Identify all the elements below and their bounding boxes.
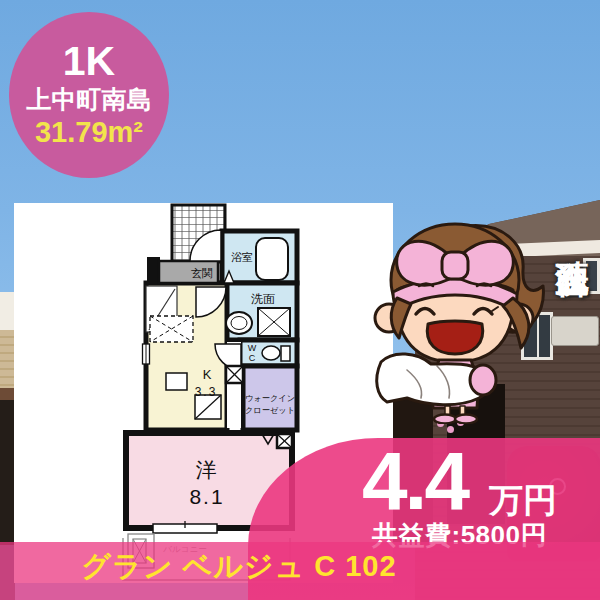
label-washroom: 洗面 [251,292,275,306]
toilet-tank [281,346,290,361]
mascot-bow-knot [442,252,468,279]
mascot-sleeve [470,365,496,395]
label-kitchen: K [203,367,212,382]
label-main-size: 8.1 [189,485,224,508]
mascot-shoe-right [455,415,477,424]
label-main-room: 洋 [196,458,217,481]
label-closet-1: ウォークイン [245,394,295,403]
rent-amount: 4.4 [362,440,467,522]
label-closet-2: クローゼット [245,406,295,415]
left-building-beam [0,388,15,400]
label-kitchen-size: 3.3 [195,385,218,399]
stove [166,373,187,390]
mascot-mouth [427,321,482,354]
label-genkan: 玄関 [191,267,213,279]
badge-layout-type: 1K [63,40,115,83]
feature-vertical-text: 独立洗面台 [549,234,589,414]
left-building-shadow [0,400,15,545]
label-wc-w: W [248,343,257,353]
badge-area: 31.79m² [35,115,143,150]
badge-location: 上中町南島 [27,84,152,115]
property-name: グラン ベルジュ C 102 [0,547,478,587]
left-building-siding [0,330,15,388]
label-bathroom: 浴室 [231,251,253,263]
flower-dot [447,426,454,433]
listing-card: 玄関 浴室 洗面 W C K 3.3 ウォークイン クローゼット 洋 8.1 バ… [0,0,600,600]
label-wc-c: C [249,353,256,363]
left-building-fascia [0,292,15,330]
toilet-bowl [262,346,280,360]
mascot-character [367,212,547,424]
property-badge: 1K 上中町南島 31.79m² [9,12,169,178]
mascot-shoe-left [434,415,456,424]
bathtub [256,238,288,280]
